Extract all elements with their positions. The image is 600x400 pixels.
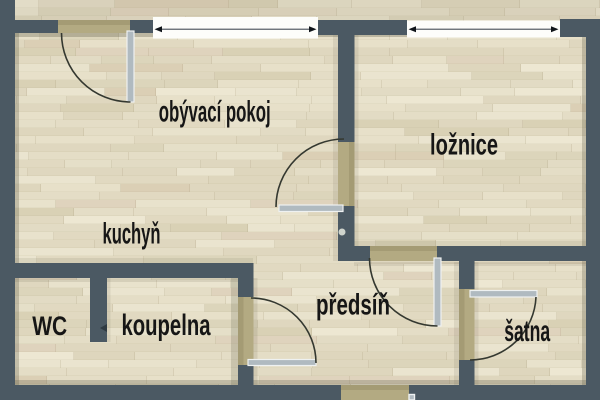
svg-text:koupelna: koupelna — [122, 309, 211, 342]
svg-text:ložnice: ložnice — [430, 128, 498, 161]
svg-text:předsíň: předsíň — [316, 289, 390, 322]
svg-text:šatna: šatna — [504, 315, 550, 348]
svg-text:obývací pokoj: obývací pokoj — [159, 96, 271, 129]
svg-text:kuchyň: kuchyň — [103, 217, 161, 250]
svg-text:WC: WC — [32, 311, 67, 341]
